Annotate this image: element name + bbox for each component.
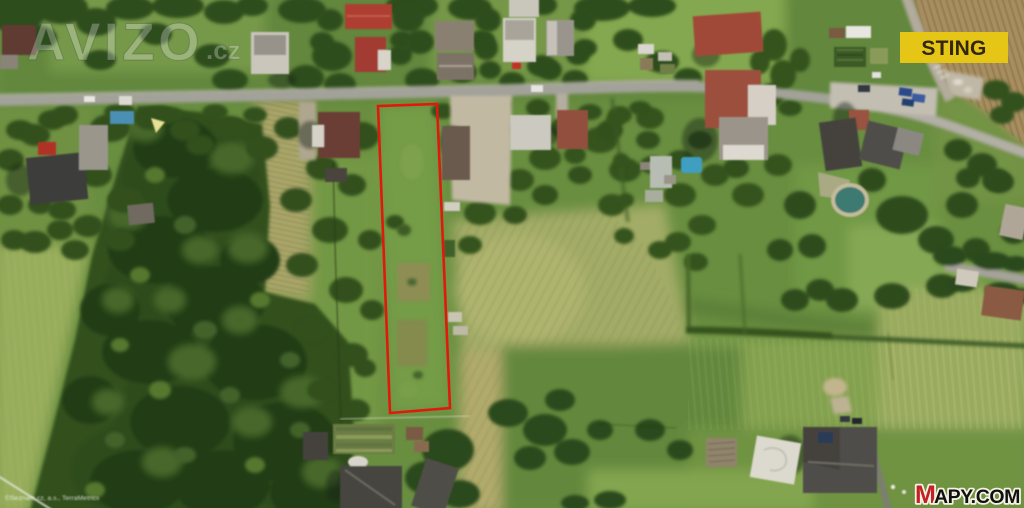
svg-text:.cz: .cz (206, 35, 241, 65)
svg-text:©Seznam.cz, a.s., TerraMetrics: ©Seznam.cz, a.s., TerraMetrics (5, 494, 100, 502)
svg-text:MAPY.COM: MAPY.COM (915, 481, 1020, 508)
svg-text:STING: STING (921, 37, 986, 60)
svg-text:AVIZO: AVIZO (27, 13, 203, 72)
